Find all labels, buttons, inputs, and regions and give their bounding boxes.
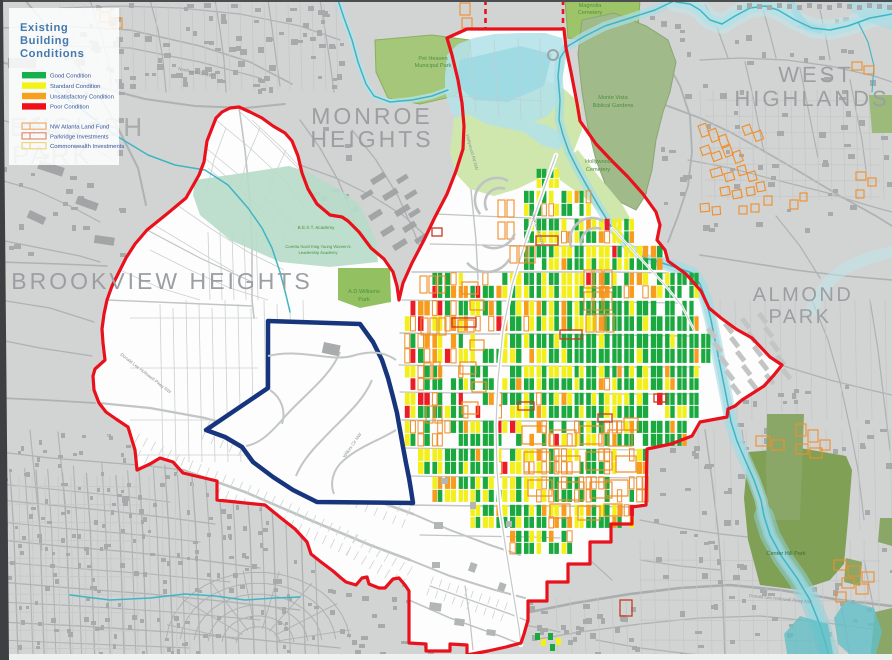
svg-text:Park: Park bbox=[358, 296, 370, 303]
svg-text:B.E.S.T. Academy: B.E.S.T. Academy bbox=[298, 225, 335, 230]
svg-text:Building: Building bbox=[20, 35, 70, 47]
svg-text:Center Hill Park: Center Hill Park bbox=[766, 550, 805, 557]
svg-text:WEST: WEST bbox=[778, 62, 854, 87]
svg-text:Poor Condition: Poor Condition bbox=[50, 104, 89, 111]
svg-text:HIGHLANDS: HIGHLANDS bbox=[734, 86, 889, 111]
svg-text:Coretta Scott King Young Women: Coretta Scott King Young Women's bbox=[285, 244, 350, 249]
svg-text:Existing: Existing bbox=[20, 22, 68, 34]
svg-text:Leadership Academy: Leadership Academy bbox=[298, 250, 338, 255]
svg-text:ALMOND: ALMOND bbox=[753, 284, 854, 306]
svg-text:Commonwealth Investments: Commonwealth Investments bbox=[50, 143, 124, 150]
svg-text:A.D.Williams: A.D.Williams bbox=[348, 288, 380, 295]
svg-text:Standard Condition: Standard Condition bbox=[50, 83, 100, 90]
svg-text:Biblical Gardens: Biblical Gardens bbox=[593, 102, 634, 109]
svg-text:Magnolia: Magnolia bbox=[579, 2, 603, 9]
svg-text:Conditions: Conditions bbox=[20, 48, 84, 60]
svg-text:HEIGHTS: HEIGHTS bbox=[310, 126, 433, 152]
svg-text:Unsatisfactory Condition: Unsatisfactory Condition bbox=[50, 93, 114, 100]
svg-text:Cemetery: Cemetery bbox=[578, 10, 602, 16]
svg-text:NW Atlanta Land Fund: NW Atlanta Land Fund bbox=[50, 124, 109, 131]
svg-text:Hollywood: Hollywood bbox=[585, 158, 611, 165]
svg-text:BROOKVIEW HEIGHTS: BROOKVIEW HEIGHTS bbox=[11, 268, 312, 294]
svg-text:Parkridge Investments: Parkridge Investments bbox=[50, 133, 109, 140]
svg-text:Municipal Park: Municipal Park bbox=[415, 62, 452, 69]
svg-text:Pet Heaven: Pet Heaven bbox=[418, 56, 447, 62]
svg-text:Monte Vista: Monte Vista bbox=[598, 94, 628, 101]
svg-text:PARK: PARK bbox=[769, 306, 832, 328]
svg-text:Good Condition: Good Condition bbox=[50, 73, 91, 80]
svg-text:Cemetery: Cemetery bbox=[586, 167, 610, 173]
